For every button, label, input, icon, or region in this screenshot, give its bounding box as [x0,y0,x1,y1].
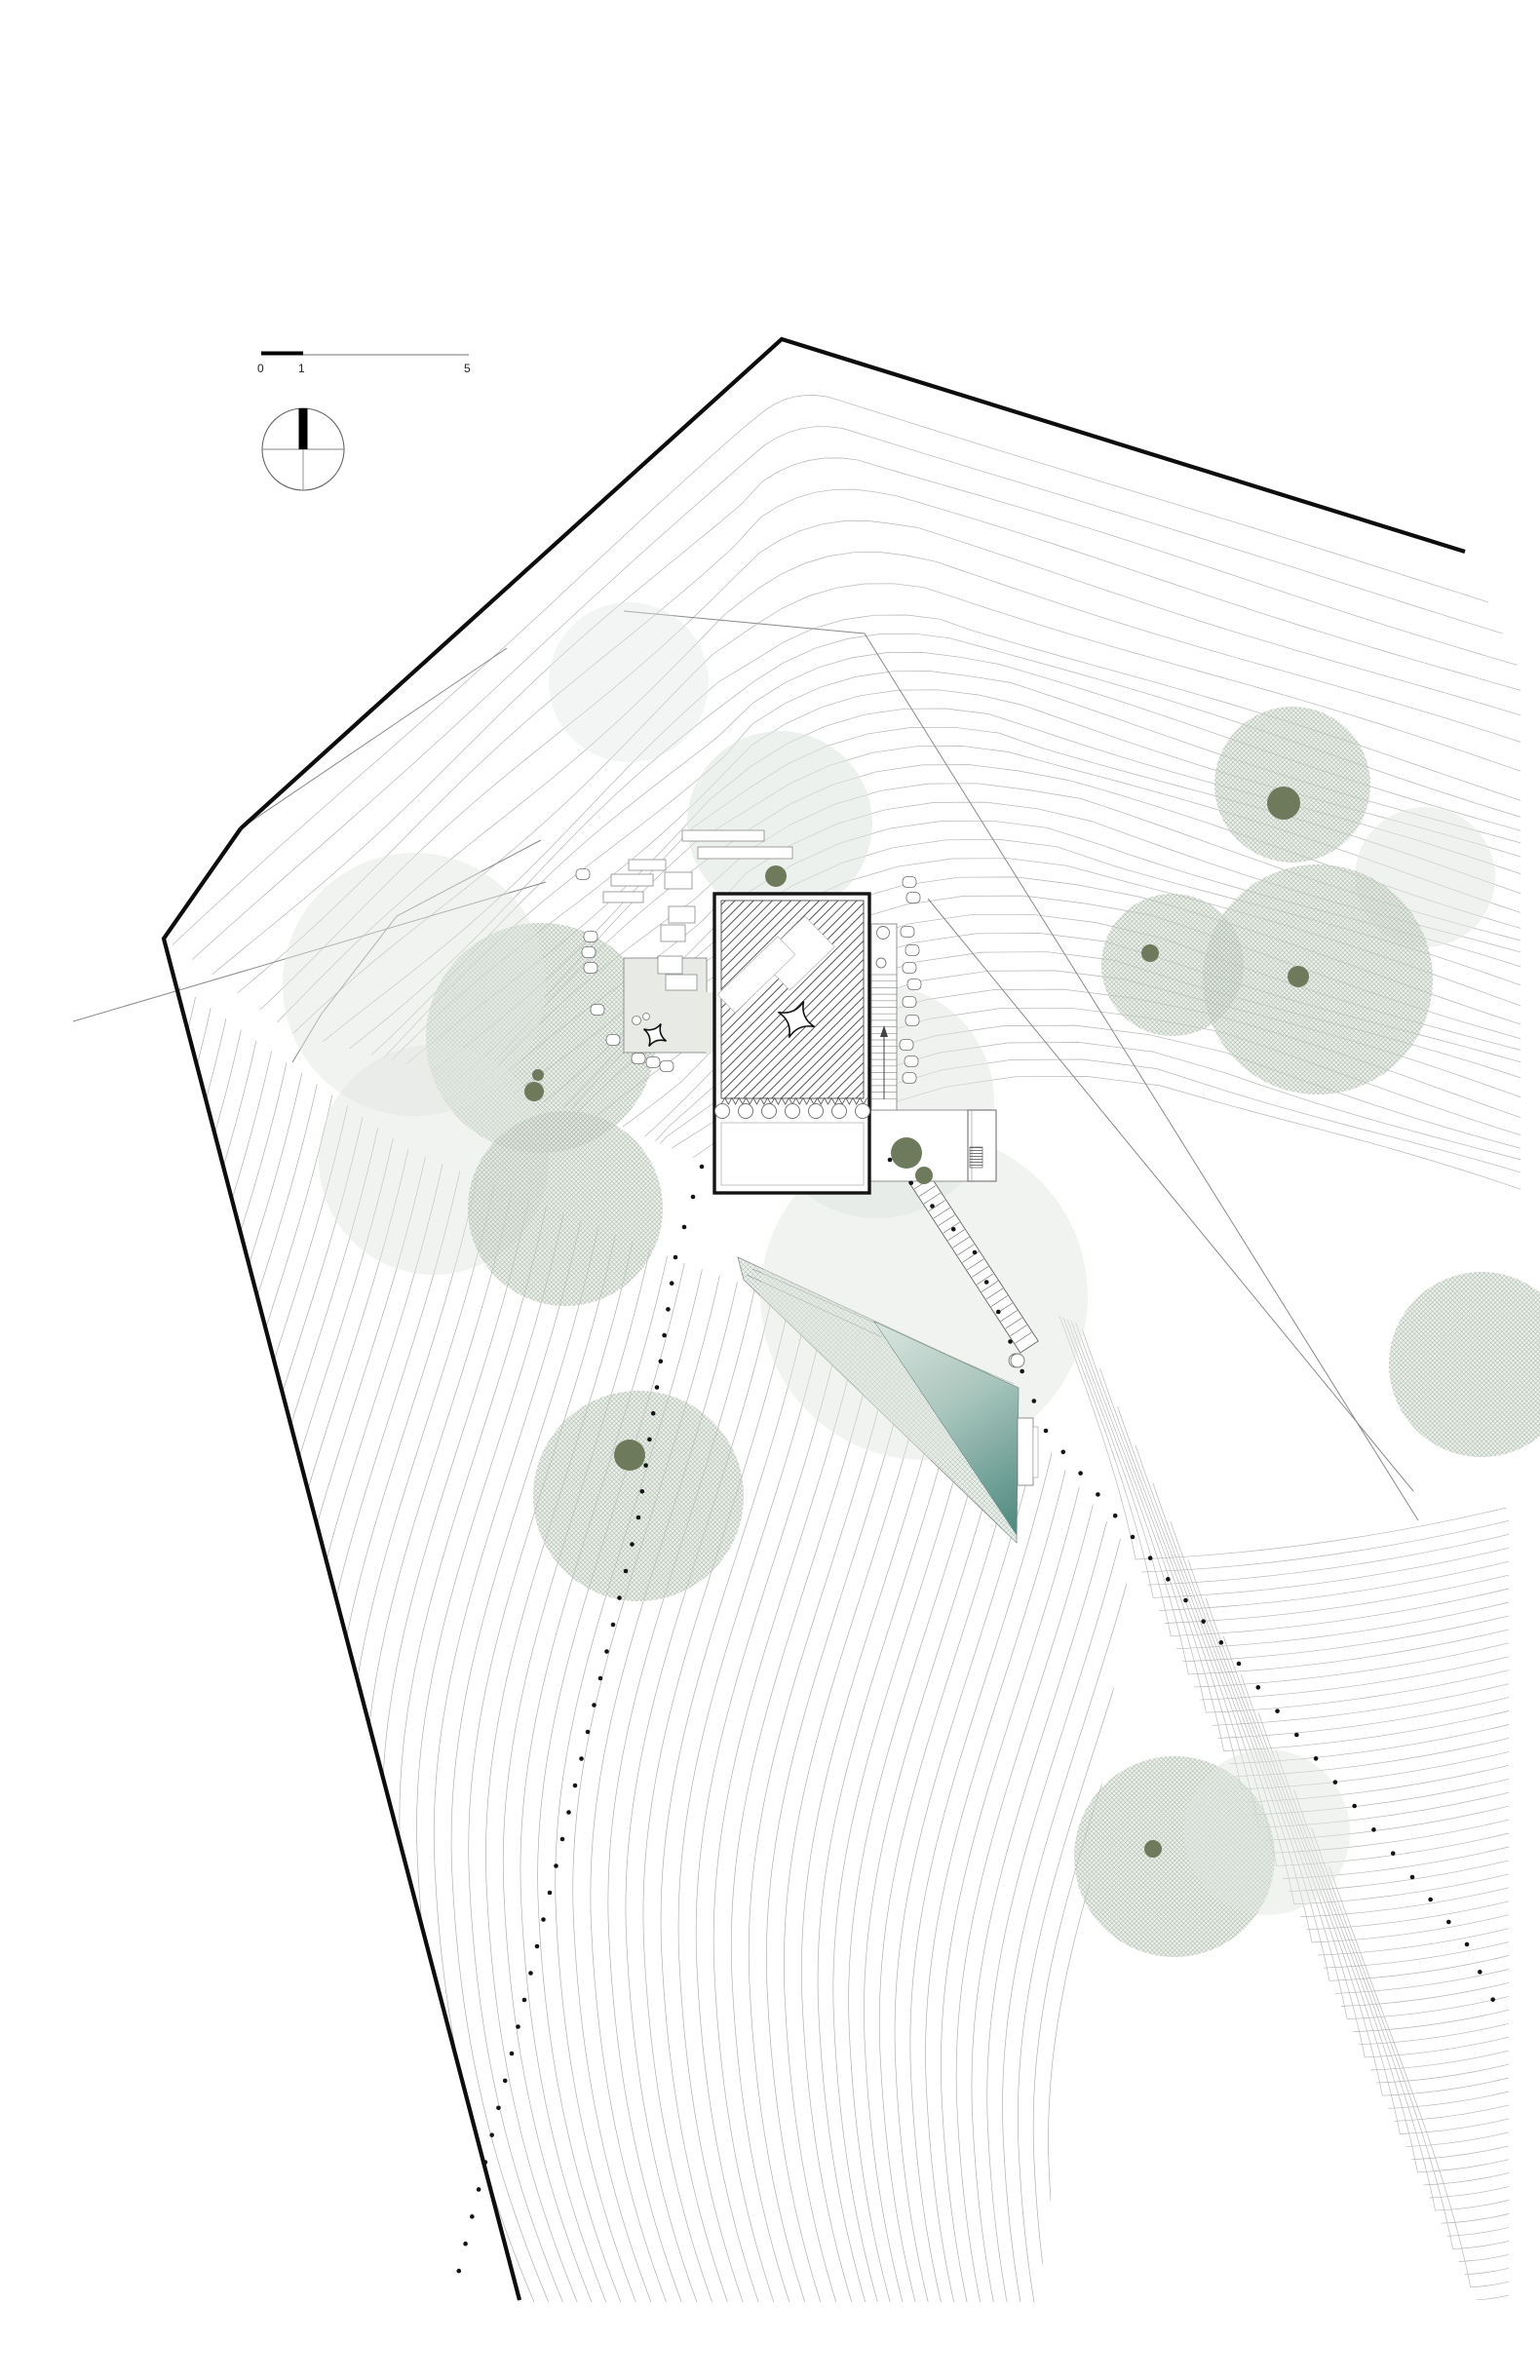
pool-bench [1018,1418,1033,1485]
path-dot [624,1569,629,1574]
path-dot [617,1595,622,1600]
path-dot [541,1917,546,1922]
tree-trunk [614,1440,645,1471]
scale-label-0: 0 [257,362,264,375]
contour-line [1121,1585,1268,2380]
path-dot [930,1204,935,1209]
contour-line [330,1178,478,2333]
path-dot [611,1623,616,1628]
scale-label-5: 5 [464,362,471,375]
contour-line [1062,1537,1210,2380]
fence-line [241,648,507,828]
contour-line [1447,2227,1509,2236]
path-dot [1061,1450,1066,1455]
contour-line [864,1398,1011,2380]
path-dot [1478,1970,1482,1975]
contour-line [1394,2105,1509,2122]
bush [906,893,920,903]
contour-line [926,1440,1073,2380]
contour-line [910,1430,1058,2380]
bush [905,945,919,956]
tree-trunk [1141,944,1159,962]
contour-line [1459,2254,1509,2261]
path-dot [548,1891,553,1896]
tree-trunk [524,1082,544,1101]
tree-canopy-hatch [1214,707,1370,863]
contour-line [1092,1561,1239,2380]
contour-line [1182,1616,1509,1662]
path-dot [503,2079,508,2084]
tree-trunk [915,1167,933,1184]
contour-line [348,1185,495,2340]
contour-line [79,1018,226,2173]
path-dot [640,1489,645,1494]
planter-box [669,906,695,923]
stair-post [876,958,886,968]
contour-line [95,1030,242,2185]
contour-line [1477,2295,1509,2300]
path-dot [888,1158,893,1163]
contour-line [201,1106,348,2261]
contour-line [400,1207,547,2361]
contour-line [185,1094,332,2249]
contour-line [451,1228,598,2380]
contour-line [1106,1573,1253,2380]
contour-line [434,1220,581,2375]
path-dot [682,1225,687,1230]
tree-trunk [1288,966,1309,987]
path-dot [1020,1369,1024,1374]
bush [646,1057,660,1068]
column [856,1104,870,1119]
contour-line [1465,2268,1509,2274]
retaining-wall-bar [611,874,653,886]
path-dot [659,1360,664,1364]
path-dot [643,1463,648,1468]
contour-line [1194,1643,1509,1687]
contour-line [1442,2214,1509,2224]
contour-line [125,1052,272,2207]
tree-trunk [1267,787,1300,820]
pool-bench-rail [1033,1427,1038,1478]
column [715,1104,730,1119]
path-dot [579,1756,584,1761]
scale-label-1: 1 [298,362,305,375]
path-dot [908,1180,913,1185]
bush [907,979,921,990]
contour-line [33,986,180,2141]
path-dot [560,1837,565,1842]
path-dot [1008,1339,1013,1344]
path-dot [604,1649,609,1654]
planter-box [666,975,697,990]
path-dot [1352,1804,1357,1809]
path-dot [674,1255,678,1260]
path-dot [586,1730,591,1735]
path-dot [973,1250,978,1255]
column [786,1104,800,1119]
path-dot [651,1411,656,1416]
path-dot [636,1516,641,1520]
bush [905,1056,918,1067]
retaining-wall-bar [629,860,666,870]
path-dot [691,1195,696,1200]
column [762,1104,777,1119]
path-dot [522,1998,527,2003]
contour-line [171,1084,318,2239]
path-dot [1166,1577,1171,1582]
path-dot [1314,1756,1319,1761]
path-dot [477,2187,481,2192]
bush [582,947,596,958]
bush [584,932,597,942]
path-dot [700,1165,705,1170]
path-dot [1333,1780,1338,1785]
site-plan-drawing: 0 1 5 [0,0,1540,2380]
path-dot [1446,1920,1451,1925]
planter-box [658,956,682,974]
bush [660,1061,674,1072]
tree-canopy-hatch [1389,1272,1540,1457]
path-dot [1148,1555,1153,1560]
contour-line [231,1128,378,2283]
path-dot [1032,1399,1037,1403]
contour-line [1430,2187,1510,2198]
bush [632,1054,645,1064]
contour-line [215,1117,363,2272]
contour-line [1200,1657,1509,1700]
planter-box [661,925,685,941]
path-dot [516,2024,520,2029]
path-dot [655,1385,660,1390]
path-dot [483,2160,488,2165]
retaining-wall-bar [698,847,792,859]
contours-southwest-field [33,986,1296,2380]
column [809,1104,824,1119]
tree-trunk [1144,1840,1162,1858]
path-dot [647,1438,652,1442]
mini-stair [970,1147,982,1168]
path-dot [662,1333,667,1338]
path-dot [528,1971,533,1976]
path-dot [1465,1942,1470,1947]
tree-trunk [532,1069,544,1081]
path-dot [1255,1685,1260,1690]
contour-line [382,1199,529,2354]
path-dot [566,1810,571,1815]
path-dot [489,2132,494,2137]
path-dot [1219,1640,1224,1645]
walkway-landing [968,1110,996,1181]
contour-line [365,1192,512,2347]
bush [584,963,597,974]
contour-line [1176,1602,1509,1649]
bush [900,1040,913,1051]
bush [903,997,916,1008]
contour-line [941,1451,1088,2380]
bush [591,1005,604,1016]
tree-trunk [891,1137,922,1169]
column [832,1104,847,1119]
path-dot [1201,1619,1206,1624]
tree-canopy [549,602,709,762]
contour-line [139,1062,287,2217]
contour-line [849,1387,996,2380]
tree-canopy [687,731,872,916]
path-dot [1410,1875,1415,1880]
path-dot [670,1281,674,1286]
path-dot [1371,1827,1376,1832]
contour-line [1329,1866,1509,2287]
path-dot [1183,1598,1188,1603]
bush [903,877,916,888]
path-dot [456,2269,461,2274]
path-dot [535,1944,540,1949]
path-dot [573,1784,578,1788]
bush [576,869,590,880]
tree-trunk [765,865,787,887]
bush [903,1073,916,1084]
stair-post [877,927,890,940]
bush [901,927,914,938]
path-dot [630,1542,635,1547]
path-dot [1131,1535,1136,1540]
path-dot [554,1863,558,1868]
path-dot [592,1703,597,1708]
contour-line [1136,1596,1283,2380]
planter-box [665,872,692,889]
tree-canopy-hatch [1203,864,1433,1094]
tree-canopy [1184,1749,1350,1915]
site-plan-canvas: 0 1 5 [0,0,1540,2380]
contour-line [1405,2132,1509,2147]
path-dot [463,2242,468,2246]
north-arrow-needle [299,408,308,449]
retaining-wall-bar [682,830,764,841]
contour-line [749,1338,896,2380]
path-dot [1237,1662,1242,1667]
contour-lines-layer [0,396,1540,2380]
contour-line [833,1377,981,2380]
contour-line [731,1332,878,2380]
contour-line [1149,1608,1296,2380]
contour-line [1411,2146,1509,2160]
path-dot [1113,1514,1118,1518]
bush [905,1016,919,1026]
contour-line [1370,2051,1509,2070]
path-dot [1044,1429,1049,1434]
retaining-wall-bar [603,892,643,902]
bush [903,963,916,974]
path-dot [1391,1851,1396,1856]
annex-post [643,1014,650,1020]
contour-line [155,1073,302,2228]
contour-line [1376,2064,1509,2083]
path-dot [1428,1898,1433,1902]
contour-line [1165,1575,1509,1623]
contour-line [1159,1561,1509,1610]
contour-line [1312,1827,1509,2248]
path-dot [951,1227,956,1232]
path-dot [510,2052,515,2056]
contour-line [879,1408,1026,2380]
path-dot [496,2105,501,2110]
contour-line [895,1419,1042,2380]
path-dot [996,1310,1001,1315]
path-dot [470,2214,475,2219]
contour-line [247,1138,394,2293]
path-dot [1275,1708,1280,1713]
contour-line [279,1157,426,2312]
ramp-end-post [1011,1354,1024,1367]
contour-line [49,997,196,2152]
path-dot [1078,1471,1083,1476]
column [739,1104,753,1119]
annex-post [633,1017,641,1025]
contour-line [295,1164,443,2319]
path-dot [984,1280,989,1285]
path-dot [1096,1492,1100,1497]
path-dot [666,1307,671,1312]
path-dot [1294,1733,1299,1738]
tree-canopy-hatch [468,1111,663,1306]
bush [606,1035,620,1046]
legend-layer: 0 1 5 [257,354,471,491]
contour-line [64,1008,212,2163]
contour-line [261,1149,408,2304]
tree-canopy-hatch [533,1391,744,1601]
path-dot [1490,1997,1495,2002]
path-dot [598,1676,603,1681]
